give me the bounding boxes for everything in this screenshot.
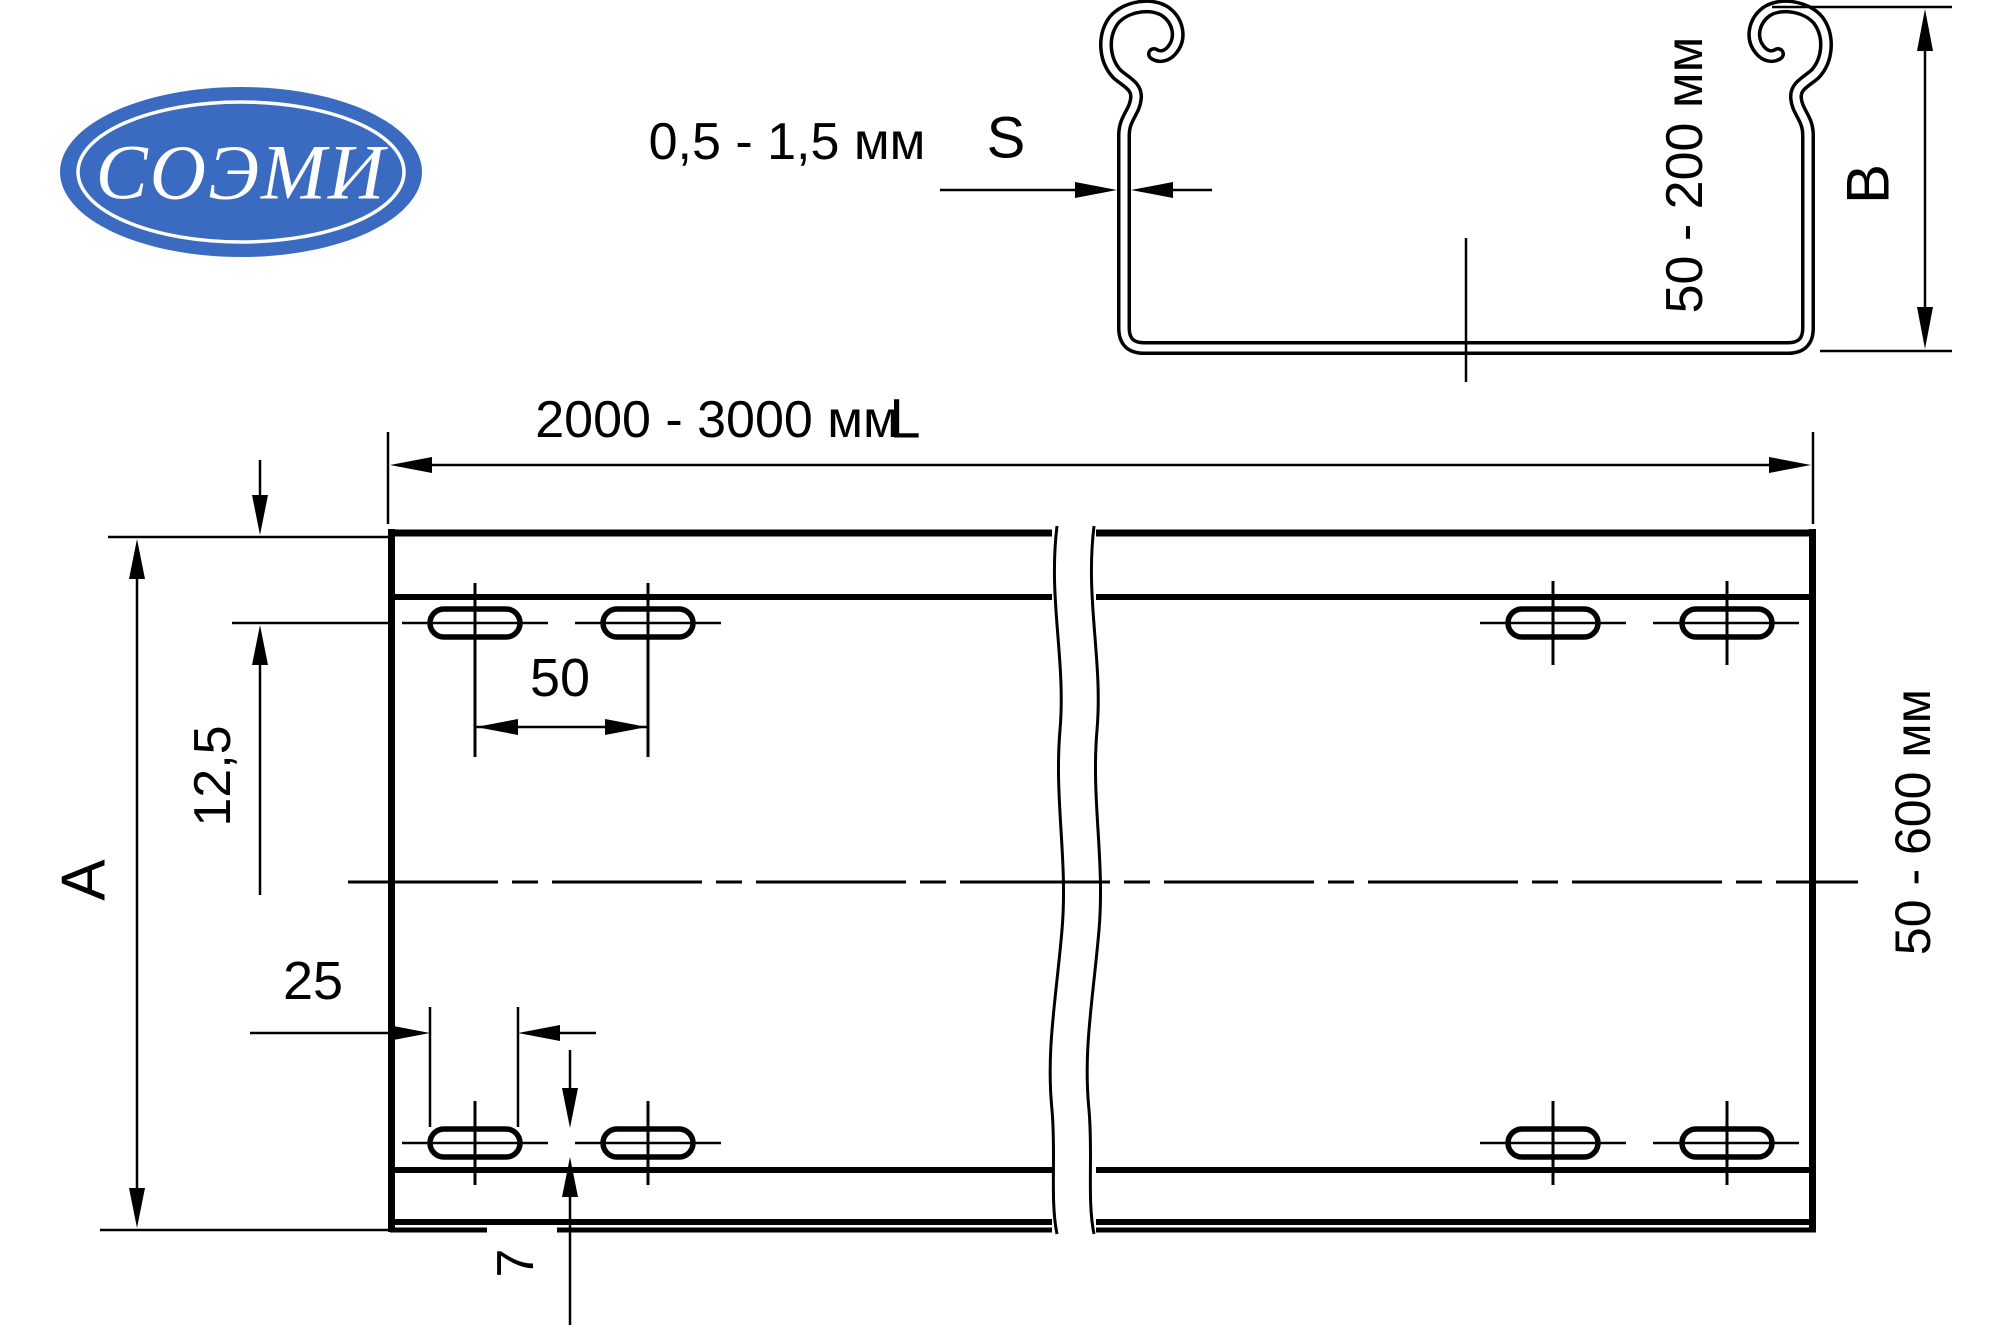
width-value-label: 50 - 600 мм — [1885, 689, 1941, 955]
slot-length-dimension — [250, 1007, 596, 1127]
slot-width-label: 7 — [487, 1249, 545, 1278]
slot-pitch-label: 50 — [530, 648, 590, 708]
width-dimension — [100, 537, 388, 1230]
cross-section-view — [940, 6, 1952, 382]
slot-length-label: 25 — [283, 951, 343, 1011]
break-line-right — [1087, 526, 1100, 1234]
arrow-up-icon — [129, 539, 145, 579]
arrow-up-icon — [562, 1157, 578, 1197]
tray-flange-lines — [388, 597, 1816, 1222]
arrow-left-icon — [390, 457, 432, 473]
break-lines — [1050, 526, 1100, 1234]
break-line-left — [1050, 526, 1063, 1234]
arrow-down-icon — [562, 1088, 578, 1128]
arrow-right-icon — [1769, 457, 1811, 473]
plan-view — [100, 432, 1858, 1325]
edge-offset-dimension — [232, 460, 390, 895]
arrow-left-icon — [1131, 182, 1173, 198]
arrow-left-icon — [518, 1025, 560, 1041]
arrow-up-icon — [1917, 9, 1933, 51]
edge-offset-label: 12,5 — [184, 725, 242, 826]
logo-text: СОЭМИ — [96, 129, 388, 216]
thickness-value-label: 0,5 - 1,5 мм — [649, 113, 926, 171]
arrow-right-icon — [388, 1025, 430, 1041]
length-value-label: 2000 - 3000 мм — [535, 391, 899, 449]
technical-drawing: СОЭМИ 0,5 - 1,5 мм S 50 - 200 мм B — [0, 0, 2000, 1333]
height-value-label: 50 - 200 мм — [1656, 37, 1714, 314]
arrow-left-icon — [476, 719, 518, 735]
arrow-up-icon — [252, 625, 268, 665]
height-symbol-label: B — [1835, 164, 1902, 204]
arrow-right-icon — [605, 719, 647, 735]
logo: СОЭМИ — [60, 87, 422, 257]
width-symbol-label: A — [50, 859, 119, 901]
arrow-down-icon — [1917, 307, 1933, 349]
arrow-down-icon — [252, 495, 268, 535]
drawing-canvas: СОЭМИ 0,5 - 1,5 мм S 50 - 200 мм B — [0, 0, 2000, 1333]
length-symbol-label: L — [889, 387, 920, 450]
arrow-right-icon — [1075, 182, 1117, 198]
arrow-down-icon — [129, 1188, 145, 1228]
thickness-symbol-label: S — [987, 106, 1026, 171]
